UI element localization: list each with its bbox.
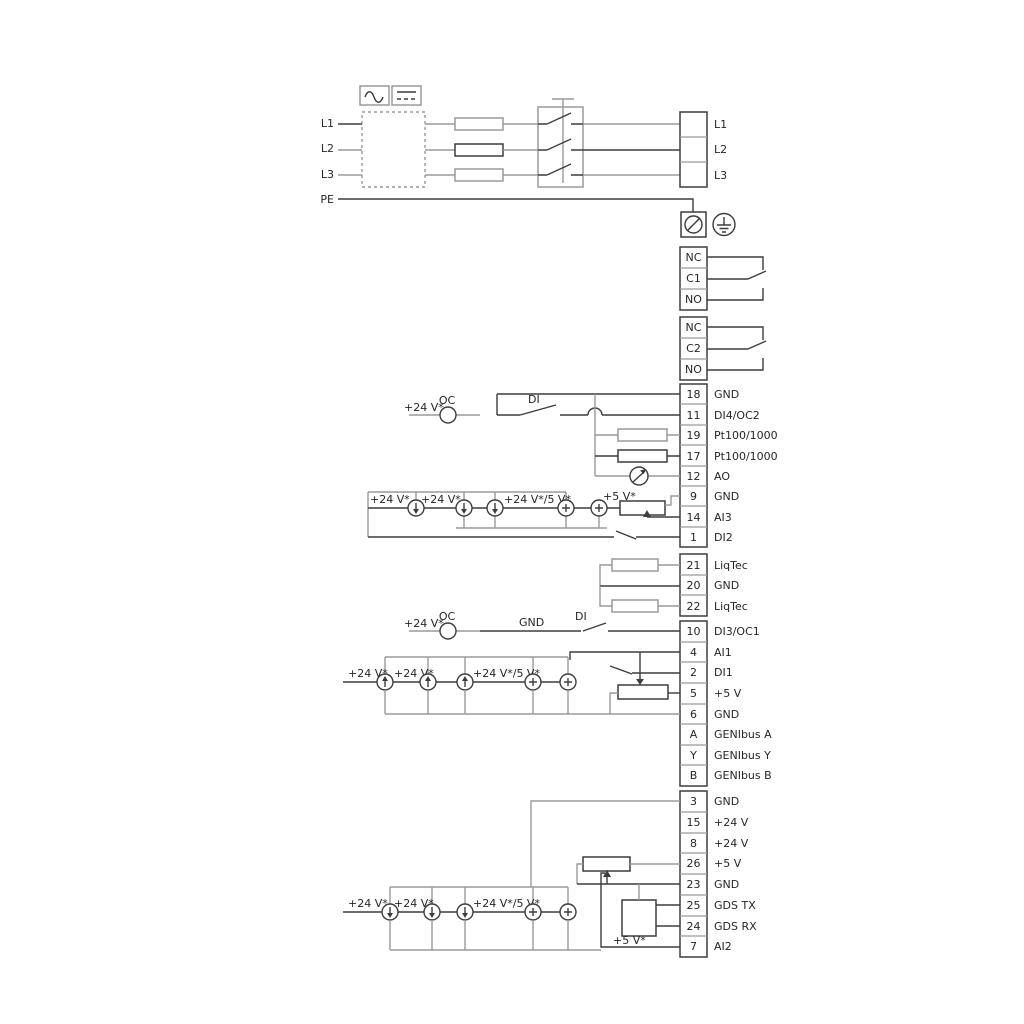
terminal-number: 9 <box>690 490 697 503</box>
io-strip-4: 3 GND 15 +24 V 8 +24 V 26 +5 V 23 GND 25… <box>680 791 757 957</box>
terminal-label: +24 V <box>714 816 749 829</box>
terminal-label: GENIbus Y <box>714 749 771 762</box>
wiring-diagram: L1 L2 L3 PE <box>0 0 1024 1024</box>
terminal-label: DI2 <box>714 531 733 544</box>
mains-output-label: L1 <box>714 118 727 131</box>
terminal-number: 19 <box>687 429 701 442</box>
terminal-label: DI4/OC2 <box>714 409 760 422</box>
oc-label: OC <box>439 610 456 623</box>
terminal-number: Y <box>689 749 697 762</box>
terminal-label: GND <box>714 388 739 401</box>
main-disconnect-switch <box>538 99 583 187</box>
mains-input-section: L1 L2 L3 PE <box>320 86 735 237</box>
relay-terminal: NC <box>686 251 702 264</box>
terminal-number: 23 <box>687 878 701 891</box>
gnd-label: GND <box>519 616 544 629</box>
terminal-label: GENIbus B <box>714 769 772 782</box>
relay-1-block: NC C1 NO <box>680 247 766 310</box>
pt100-sensor-icon <box>618 450 667 462</box>
mains-input-label: L1 <box>321 117 334 130</box>
cable-clamp-icon <box>681 212 706 237</box>
terminal-number: 8 <box>690 837 697 850</box>
terminal-label: Pt100/1000 <box>714 429 778 442</box>
terminal-label: LiqTec <box>714 600 748 613</box>
terminal-number: 26 <box>687 857 701 870</box>
voltage-label: +5 V* <box>613 934 646 947</box>
terminal-label: LiqTec <box>714 559 748 572</box>
liqtec-sensor-loops <box>600 559 680 612</box>
relay-terminal: C2 <box>686 342 701 355</box>
relay-2-block: NC C2 NO <box>680 317 766 380</box>
current-source-icon <box>377 674 473 690</box>
terminal-number: 12 <box>687 470 701 483</box>
relay-terminal: NC <box>686 321 702 334</box>
terminal-number: 25 <box>687 899 701 912</box>
analog-output-meter-icon <box>630 467 648 485</box>
terminal-number: 3 <box>690 795 697 808</box>
terminal-number: 14 <box>687 511 701 524</box>
terminal-label: GDS RX <box>714 920 757 933</box>
terminal-number: 21 <box>687 559 701 572</box>
terminal-number: 1 <box>690 531 697 544</box>
voltage-label: +24 V* <box>421 493 461 506</box>
liqtec-sensor-icon <box>612 559 658 571</box>
open-collector-icon <box>440 623 456 639</box>
diagram-canvas: L1 L2 L3 PE <box>0 0 1024 1024</box>
io-strip-1: 18 GND 11 DI4/OC2 19 Pt100/1000 17 Pt100… <box>680 384 778 547</box>
current-source-icon <box>382 904 473 920</box>
terminal-label: GND <box>714 708 739 721</box>
terminal-label: AI3 <box>714 511 732 524</box>
mains-input-label: L2 <box>321 142 334 155</box>
terminal-label: GND <box>714 795 739 808</box>
pt100-sensor-icon <box>618 429 667 441</box>
relay-terminal: NO <box>685 363 702 376</box>
terminal-number: 15 <box>687 816 701 829</box>
strip1-circuits: +24 V* OC DI +24 V* +24 V* +24 V*/5 V* +… <box>368 393 680 539</box>
fuse-l3-icon <box>455 169 503 181</box>
terminal-number: 22 <box>687 600 701 613</box>
terminal-label: AO <box>714 470 730 483</box>
terminal-number: 18 <box>687 388 701 401</box>
terminal-number: 10 <box>687 625 701 638</box>
fuse-l2-icon <box>455 144 503 156</box>
terminal-label: GENIbus A <box>714 728 772 741</box>
open-collector-icon <box>440 407 456 423</box>
terminal-number: 5 <box>690 687 697 700</box>
relay-2-contact <box>707 327 766 370</box>
mains-output-label: L3 <box>714 169 727 182</box>
relay-terminal: NO <box>685 293 702 306</box>
mains-terminal-block: L1 L2 L3 <box>680 112 727 187</box>
relay-1-contact <box>707 257 766 300</box>
mains-input-label: PE <box>320 193 334 206</box>
fuse-l1-icon <box>455 118 503 130</box>
terminal-number: A <box>690 728 698 741</box>
earth-icon <box>713 214 735 236</box>
terminal-number: 11 <box>687 409 701 422</box>
terminal-number: 17 <box>687 450 701 463</box>
di-label: DI <box>575 610 587 623</box>
terminal-number: B <box>690 769 698 782</box>
ac-symbol-icon <box>360 86 389 105</box>
terminal-label: DI3/OC1 <box>714 625 760 638</box>
liqtec-strip: 21 LiqTec 20 GND 22 LiqTec <box>600 554 748 616</box>
terminal-label: +5 V <box>714 857 742 870</box>
oc-label: OC <box>439 394 456 407</box>
io-strip-3: 10 DI3/OC1 4 AI1 2 DI1 5 +5 V 6 GND A GE… <box>680 621 772 786</box>
strip4-circuits: +24 V* +24 V* +24 V*/5 V* +5 V* <box>343 801 680 950</box>
terminal-number: 20 <box>687 579 701 592</box>
voltage-label: +24 V* <box>370 493 410 506</box>
potentiometer-icon <box>577 857 680 884</box>
strip3-circuits: +24 V* OC GND DI +24 V* +24 V* +24 V*/5 … <box>343 610 680 714</box>
emc-filter-box <box>362 112 425 187</box>
terminal-label: GND <box>714 490 739 503</box>
terminal-number: 2 <box>690 666 697 679</box>
terminal-number: 4 <box>690 646 697 659</box>
liqtec-sensor-icon <box>612 600 658 612</box>
terminal-label: AI1 <box>714 646 732 659</box>
terminal-label: GND <box>714 579 739 592</box>
terminal-label: +24 V <box>714 837 749 850</box>
potentiometer-icon <box>610 652 680 714</box>
terminal-label: +5 V <box>714 687 742 700</box>
terminal-label: DI1 <box>714 666 733 679</box>
terminal-label: Pt100/1000 <box>714 450 778 463</box>
mains-output-label: L2 <box>714 143 727 156</box>
voltage-label: +24 V* <box>348 897 388 910</box>
terminal-number: 7 <box>690 940 697 953</box>
mains-input-label: L3 <box>321 168 334 181</box>
pe-wire <box>338 199 693 212</box>
relay-terminal: C1 <box>686 272 701 285</box>
gds-sensor-box: +5 V* <box>613 884 680 947</box>
di-label: DI <box>528 393 540 406</box>
terminal-number: 24 <box>687 920 701 933</box>
terminal-label: GDS TX <box>714 899 756 912</box>
dc-symbol-icon <box>392 86 421 105</box>
terminal-label: AI2 <box>714 940 732 953</box>
terminal-label: GND <box>714 878 739 891</box>
terminal-number: 6 <box>690 708 697 721</box>
